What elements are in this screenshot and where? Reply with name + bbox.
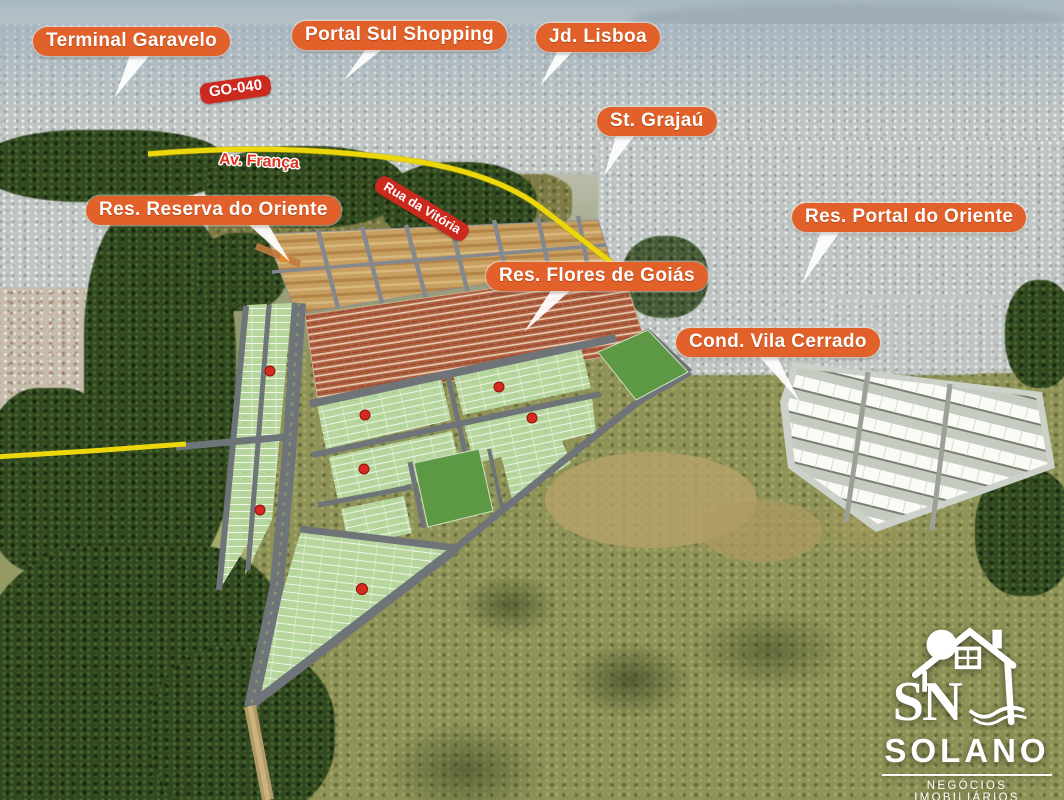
label-jd-lisboa: Jd. Lisboa (536, 23, 660, 52)
house-wall-stroke (1007, 662, 1011, 722)
vila-cerrado-buildings (780, 362, 1055, 532)
label-cond-vila-cerrado: Cond. Vila Cerrado (676, 328, 880, 357)
solano-house-icon: SN (887, 616, 1047, 728)
logo-initials: SN (893, 671, 964, 728)
label-res-portal-do-oriente: Res. Portal do Oriente (792, 203, 1026, 232)
chimney-icon (992, 630, 1001, 649)
label-res-flores-de-goias: Res. Flores de Goiás (486, 262, 708, 291)
logo-name: SOLANO (872, 734, 1062, 769)
label-terminal-garavelo: Terminal Garavelo (33, 27, 230, 56)
label-res-reserva-do-oriente: Res. Reserva do Oriente (86, 196, 341, 225)
aerial-development-map: Terminal Garavelo Portal Sul Shopping Jd… (0, 0, 1064, 800)
solano-logo: SN SOLANO NEGÓCIOS IMOBILIÁRIOS (872, 616, 1062, 800)
logo-divider (882, 774, 1052, 776)
label-portal-sul-shopping: Portal Sul Shopping (292, 21, 507, 50)
logo-tagline: NEGÓCIOS IMOBILIÁRIOS (872, 780, 1062, 800)
label-st-grajau: St. Grajaú (597, 107, 717, 136)
